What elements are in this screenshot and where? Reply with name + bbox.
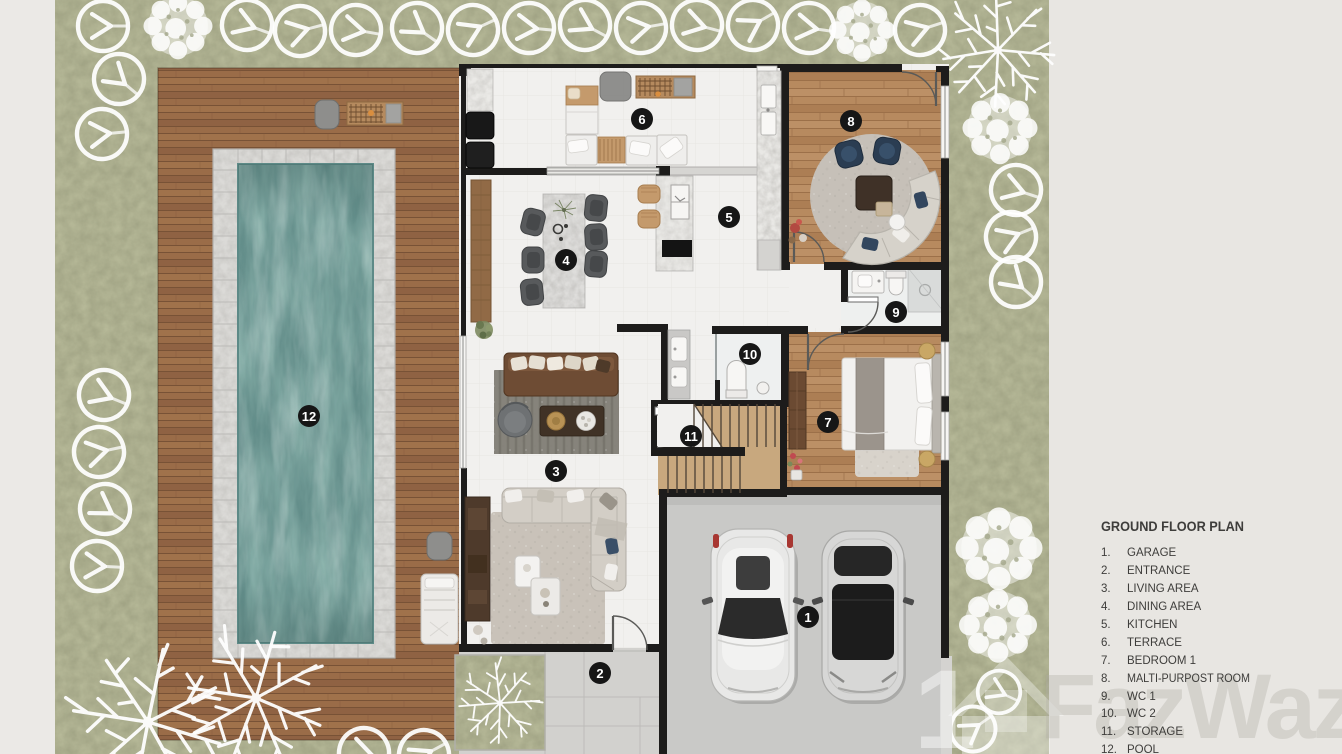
svg-text:8.: 8. (1101, 673, 1111, 685)
svg-text:MALTI-PURPOST ROOM: MALTI-PURPOST ROOM (1127, 673, 1250, 685)
svg-text:WC 2: WC 2 (1127, 708, 1156, 720)
svg-text:7: 7 (824, 415, 831, 430)
svg-text:4: 4 (562, 253, 570, 268)
svg-text:9.: 9. (1101, 691, 1111, 703)
svg-text:6.: 6. (1101, 637, 1111, 649)
svg-text:11.: 11. (1101, 726, 1116, 738)
svg-text:4.: 4. (1101, 601, 1111, 613)
svg-text:WC 1: WC 1 (1127, 691, 1156, 703)
svg-text:BEDROOM 1: BEDROOM 1 (1127, 655, 1196, 667)
svg-text:ENTRANCE: ENTRANCE (1127, 565, 1191, 577)
svg-text:9: 9 (892, 305, 899, 320)
svg-text:12.: 12. (1101, 744, 1117, 754)
svg-text:1.: 1. (1101, 547, 1111, 559)
svg-text:3.: 3. (1101, 583, 1111, 595)
svg-text:POOL: POOL (1127, 744, 1160, 754)
svg-text:STORAGE: STORAGE (1127, 726, 1183, 738)
svg-text:12: 12 (302, 409, 316, 424)
svg-text:GROUND FLOOR PLAN: GROUND FLOOR PLAN (1101, 518, 1244, 534)
svg-text:11: 11 (684, 429, 698, 444)
svg-text:TERRACE: TERRACE (1127, 637, 1182, 649)
svg-text:10.: 10. (1101, 708, 1117, 720)
svg-text:1: 1 (804, 610, 811, 625)
svg-text:2: 2 (596, 666, 603, 681)
svg-text:6: 6 (638, 112, 645, 127)
svg-text:KITCHEN: KITCHEN (1127, 619, 1177, 631)
svg-text:7.: 7. (1101, 655, 1111, 667)
svg-text:GARAGE: GARAGE (1127, 547, 1177, 559)
svg-text:LIVING AREA: LIVING AREA (1127, 583, 1199, 595)
svg-text:5.: 5. (1101, 619, 1111, 631)
svg-text:3: 3 (552, 464, 559, 479)
svg-text:10: 10 (743, 347, 757, 362)
svg-text:5: 5 (725, 210, 732, 225)
svg-text:DINING AREA: DINING AREA (1127, 601, 1201, 613)
svg-text:2.: 2. (1101, 565, 1111, 577)
svg-text:FazWaz: FazWaz (1040, 656, 1342, 754)
svg-text:8: 8 (847, 114, 854, 129)
